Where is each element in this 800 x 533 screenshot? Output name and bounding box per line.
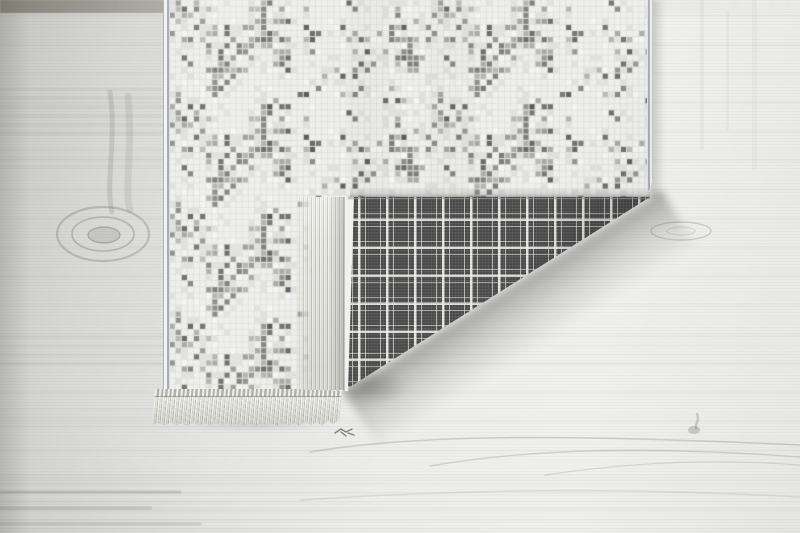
product-photo-rug-on-wood-floor bbox=[0, 0, 800, 533]
fold-crease-line bbox=[348, 195, 650, 199]
rug-folded-corner bbox=[296, 195, 654, 395]
rug-fringe-folded-edge bbox=[296, 197, 344, 390]
floor-smudge bbox=[688, 426, 700, 434]
